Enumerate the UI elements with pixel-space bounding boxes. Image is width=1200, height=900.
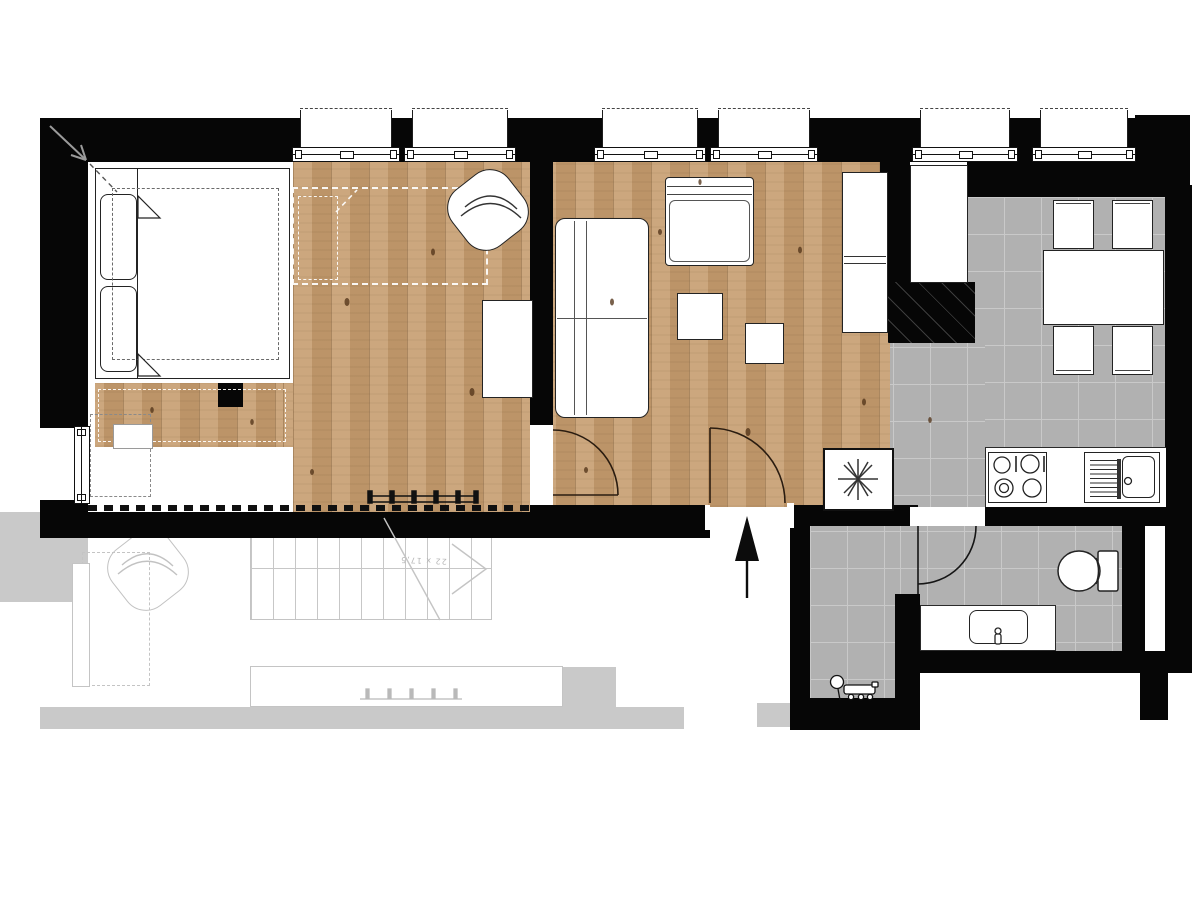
wall-corner-top-right xyxy=(1135,115,1190,185)
floor-tile-hall-connector xyxy=(895,526,918,594)
dining-chair-2-back xyxy=(1115,203,1150,204)
wall-hall-right xyxy=(895,594,920,704)
window-5-sill xyxy=(920,110,1010,148)
ghost-staircase-midline xyxy=(250,568,492,569)
vanity-basin xyxy=(969,610,1028,644)
floor-tile-kitchen-b xyxy=(890,343,985,507)
tall-cabinet-shelf-line-1 xyxy=(844,256,886,257)
window-6-sill xyxy=(1040,110,1128,148)
ghost-window-left xyxy=(72,563,90,687)
wall-left-upper xyxy=(40,118,88,428)
dining-chair-4 xyxy=(1112,326,1153,375)
wall-right-outer xyxy=(1165,185,1192,673)
ghost-stairs-annotation: 22 x 17,5 xyxy=(400,555,447,566)
dining-table xyxy=(1043,250,1164,325)
lounge-chair-back-line-2 xyxy=(667,194,752,195)
wall-bottom-living xyxy=(530,505,710,538)
sofa-seat-split xyxy=(557,318,647,319)
dining-chair-2 xyxy=(1112,200,1153,249)
window-3-frame xyxy=(594,147,706,162)
ghost-floor-stub-right xyxy=(757,703,790,727)
window-5-dash xyxy=(920,108,1010,109)
jamb-bedroom-door-top xyxy=(530,425,553,432)
mezzanine-void-edge xyxy=(88,505,530,511)
wardrobe-dashed-inner xyxy=(298,196,338,280)
jamb-bedroom-door-bottom xyxy=(530,495,553,505)
dining-chair-1 xyxy=(1053,200,1094,249)
jamb-hall-top-right xyxy=(910,507,918,526)
sink-unit-outline xyxy=(1084,452,1160,503)
window-1-frame xyxy=(292,147,400,162)
wall-bath-bottom xyxy=(918,651,1145,673)
dining-chair-4-back xyxy=(1115,370,1150,371)
ghost-counter-block xyxy=(563,667,616,707)
dining-chair-1-back xyxy=(1056,203,1091,204)
bed-duvet-dashed xyxy=(112,188,279,360)
jamb-entrance-left xyxy=(705,505,710,530)
tall-cabinet xyxy=(842,172,888,333)
jamb-entrance-right xyxy=(787,503,794,528)
entry-arrow-icon xyxy=(735,516,759,598)
ghost-floor-strip-bottom xyxy=(40,707,684,729)
ghost-counter xyxy=(250,666,563,707)
window-3-sill xyxy=(602,110,698,148)
wall-divider-bed-living xyxy=(530,162,553,430)
window-2-frame xyxy=(404,147,516,162)
tall-cabinet-shelf-line-2 xyxy=(844,263,886,264)
column-kitchen xyxy=(888,282,975,343)
side-table-1 xyxy=(677,293,723,340)
shower-skylight-box xyxy=(823,448,894,511)
ghost-dashed-cabinet xyxy=(82,552,150,686)
dresser-solid xyxy=(113,424,153,449)
lounge-chair-seat xyxy=(669,200,750,262)
window-5-frame xyxy=(912,147,1018,162)
window-1-sill xyxy=(300,110,392,148)
cooktop xyxy=(988,452,1047,503)
wall-corner-bottom-right xyxy=(1140,651,1168,720)
window-4-sill xyxy=(718,110,810,148)
wall-hall-left xyxy=(790,505,810,730)
window-west-bedroom xyxy=(74,426,90,504)
dining-chair-3-back xyxy=(1056,370,1091,371)
window-3-dash xyxy=(602,108,698,109)
dining-chair-3 xyxy=(1053,326,1094,375)
window-4-dash xyxy=(718,108,810,109)
floor-plan-canvas: 22 x 17,5 xyxy=(0,0,1200,900)
wall-bath-right xyxy=(1122,526,1145,651)
fridge-tall-unit xyxy=(910,165,968,283)
floor-tile-hall xyxy=(808,526,895,698)
lounge-chair-back-line-1 xyxy=(667,186,752,187)
jamb-bath-door xyxy=(978,507,985,526)
window-4-frame xyxy=(710,147,818,162)
window-6-frame xyxy=(1032,147,1136,162)
window-1-dash xyxy=(300,108,392,109)
wall-kitchen-bottom xyxy=(985,507,1173,526)
window-2-sill xyxy=(412,110,508,148)
window-6-dash xyxy=(1040,108,1128,109)
desk xyxy=(482,300,533,398)
window-2-dash xyxy=(412,108,508,109)
side-table-2 xyxy=(745,323,784,364)
